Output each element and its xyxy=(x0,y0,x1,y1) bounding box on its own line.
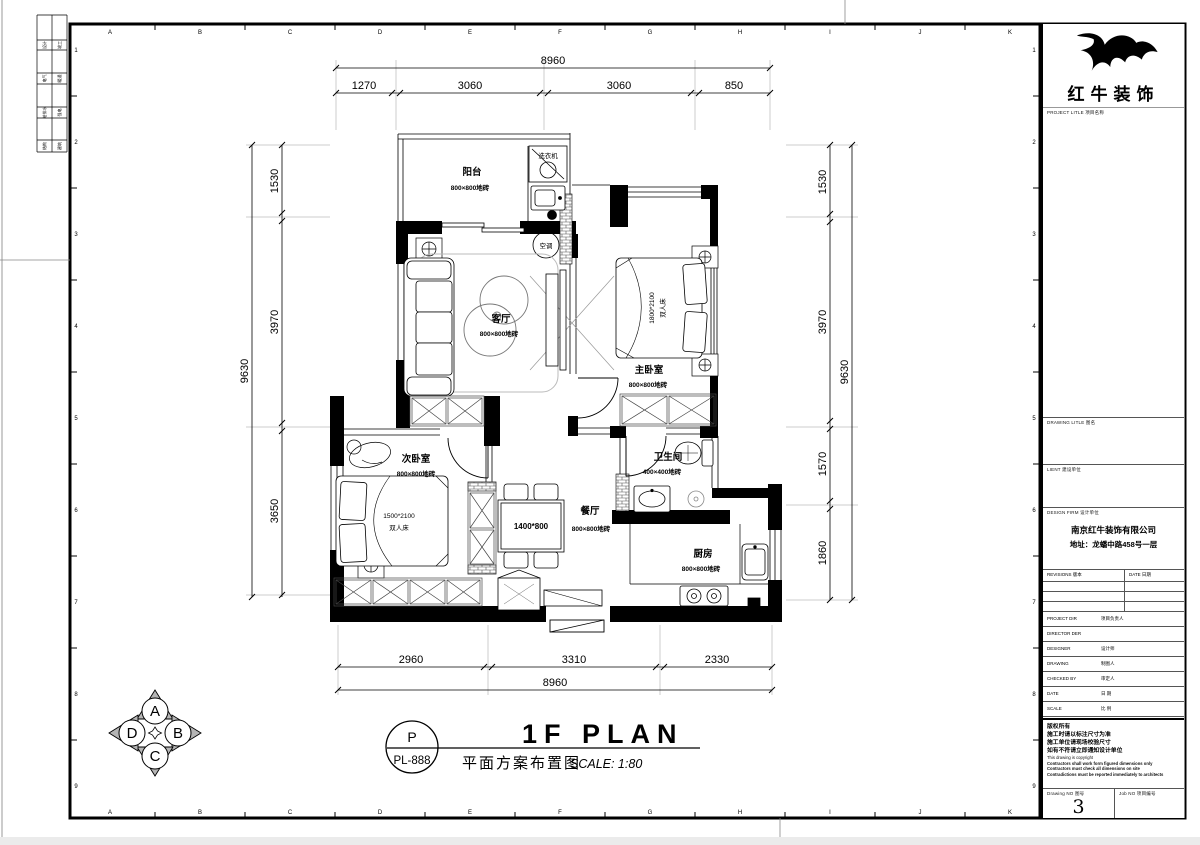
design-firm-label: DESIGN FIRM 设计单位 xyxy=(1043,508,1184,516)
revision-row xyxy=(1043,582,1184,592)
dim-left-2: 3970 xyxy=(269,310,281,334)
entry-door xyxy=(550,620,604,632)
revision-row xyxy=(1043,602,1184,612)
room-tile-balcony: 800×800地砖 xyxy=(451,183,490,192)
dim-bottom-3: 2330 xyxy=(705,654,729,666)
room-label-bath: 卫生间 xyxy=(654,451,683,463)
dim-bottom-total: 8960 xyxy=(543,677,567,689)
svg-text:K: K xyxy=(1008,810,1012,816)
svg-text:4: 4 xyxy=(74,324,78,330)
svg-text:4: 4 xyxy=(1032,324,1036,330)
room-label-bed2: 次卧室 xyxy=(402,453,431,465)
master-door xyxy=(578,378,618,418)
field-drawing: DRAWING制图人 xyxy=(1043,657,1184,672)
stamp-number: PL-888 xyxy=(393,755,430,767)
footer-title: P PL-888 1F PLAN 平面方案布置图 SCALE: 1:80 xyxy=(386,719,700,773)
ac-label: 空调 xyxy=(540,241,553,250)
compass-b: B xyxy=(173,725,183,742)
master-bed-size: 1800*2100 xyxy=(649,292,656,324)
svg-text:K: K xyxy=(1008,30,1012,36)
room-tile-master: 800×800地砖 xyxy=(629,380,668,389)
svg-text:9: 9 xyxy=(1032,784,1036,790)
dim-right-1: 1530 xyxy=(817,170,829,194)
dim-top-3: 3060 xyxy=(607,80,631,92)
room-tile-bath: 400×400地砖 xyxy=(643,467,682,476)
revisions-label: REVISIONS 版本 xyxy=(1043,570,1125,581)
room-label-dining: 餐厅 xyxy=(579,505,600,517)
svg-text:F: F xyxy=(558,30,562,36)
svg-text:暖通: 暖通 xyxy=(56,75,62,83)
floor-plan: 阳台 800×800地砖 洗衣机 空调 客厅 800×800地砖 主卧室 800… xyxy=(330,133,782,632)
svg-text:强电: 强电 xyxy=(56,109,62,117)
stamp-letter: P xyxy=(407,729,416,745)
center-cabinet xyxy=(468,482,496,574)
dim-left-total: 9630 xyxy=(239,359,251,383)
bedroom2-door xyxy=(448,438,488,478)
compass-a: A xyxy=(150,703,160,720)
dim-left-1: 1530 xyxy=(269,169,281,193)
room-tile-living: 800×800地砖 xyxy=(480,329,519,338)
bedroom2-wardrobe xyxy=(334,578,482,606)
field-director: DIRECTOR DER xyxy=(1043,627,1184,642)
svg-text:2: 2 xyxy=(1032,140,1036,146)
svg-text:G: G xyxy=(648,30,653,36)
svg-text:H: H xyxy=(738,30,742,36)
svg-text:J: J xyxy=(919,810,922,816)
dim-bottom-1: 2960 xyxy=(399,654,423,666)
copyright-notes: 版权所有 施工时请以标注尺寸为准 施工单位请现场校验尺寸 如有不符请立即通知设计… xyxy=(1043,718,1184,788)
room-tile-kitchen: 800×800地砖 xyxy=(682,564,721,573)
dim-right-2: 3970 xyxy=(817,310,829,334)
dim-right-3: 1570 xyxy=(817,452,829,476)
compass-d: D xyxy=(127,725,138,742)
svg-text:1: 1 xyxy=(74,48,78,54)
signature-fields: PROJECT DIR项目负责人 DIRECTOR DER DESIGNER设计… xyxy=(1043,612,1184,717)
revision-row xyxy=(1043,592,1184,602)
room-label-balcony: 阳台 xyxy=(462,166,482,178)
revisions-date-label: DATE 日期 xyxy=(1125,570,1184,581)
svg-text:2: 2 xyxy=(74,140,78,146)
svg-text:G: G xyxy=(648,810,653,816)
project-title-label: PROJECT LITLE 项目名称 xyxy=(1043,108,1184,116)
room-label-living: 客厅 xyxy=(490,313,511,325)
dim-top-total: 8960 xyxy=(541,55,565,67)
svg-text:5: 5 xyxy=(1032,416,1036,422)
svg-text:7: 7 xyxy=(74,600,78,606)
svg-text:A: A xyxy=(108,810,112,816)
dim-left-3: 3650 xyxy=(269,499,281,523)
svg-text:5: 5 xyxy=(74,416,78,422)
svg-text:A: A xyxy=(108,30,112,36)
field-project-dir: PROJECT DIR项目负责人 xyxy=(1043,612,1184,627)
svg-text:B: B xyxy=(198,30,202,36)
balcony-sliding-door xyxy=(442,223,524,232)
firm-name: 南京红牛装饰有限公司 xyxy=(1043,524,1184,536)
edge-signoff-table xyxy=(37,15,67,152)
compass-center-icon xyxy=(149,727,162,739)
svg-text:建筑: 建筑 xyxy=(56,142,62,150)
bathroom-sink xyxy=(634,486,670,512)
kitchen-sink xyxy=(742,544,768,580)
room-label-kitchen: 厨房 xyxy=(693,548,712,560)
second-bed-size: 1500*2100 xyxy=(383,513,415,520)
room-tile-bed2: 800×800地砖 xyxy=(397,469,436,478)
shower-drain xyxy=(688,491,704,507)
company-name: 红牛装饰 xyxy=(1043,80,1184,105)
client-label: LIENT 建设单位 xyxy=(1043,465,1184,473)
dining-table-size: 1400*800 xyxy=(514,522,549,531)
firm-address: 地址：龙蟠中路458号一层 xyxy=(1043,539,1184,550)
svg-text:竣工: 竣工 xyxy=(56,41,62,49)
svg-text:C: C xyxy=(288,810,293,816)
compass-c: C xyxy=(150,748,161,765)
sofa xyxy=(404,258,454,396)
second-bed xyxy=(336,476,448,566)
compass: A B C D xyxy=(109,690,201,776)
room-label-master: 主卧室 xyxy=(635,364,664,376)
svg-text:6: 6 xyxy=(74,508,78,514)
drawing-no-value: 3 xyxy=(1043,796,1114,818)
note-line: 施工单位请现场校验尺寸 xyxy=(1047,739,1184,747)
master-bed-name: 双人床 xyxy=(658,298,667,318)
svg-text:3: 3 xyxy=(74,232,78,238)
note-line: 如有不符请立即通知设计单位 xyxy=(1047,747,1184,755)
svg-text:D: D xyxy=(378,810,383,816)
note-line: Contradictions must be reported immediat… xyxy=(1047,772,1184,778)
room-tile-dining: 800×800地砖 xyxy=(572,524,611,533)
plan-scale: SCALE: 1:80 xyxy=(570,757,642,771)
washing-machine xyxy=(529,146,567,182)
svg-text:电气: 电气 xyxy=(41,75,47,83)
company-logo: 红牛装饰 xyxy=(1043,24,1184,108)
note-line: 施工时请以标注尺寸为准 xyxy=(1047,731,1184,739)
svg-text:I: I xyxy=(829,30,831,36)
drawing-number-row: Drawing NO 图号 3 Job NO 项目编号 xyxy=(1043,788,1184,818)
svg-text:J: J xyxy=(919,30,922,36)
svg-text:7: 7 xyxy=(1032,600,1036,606)
svg-text:设计: 设计 xyxy=(41,41,47,49)
revisions-table: REVISIONS 版本 DATE 日期 xyxy=(1043,570,1184,612)
svg-text:8: 8 xyxy=(1032,692,1036,698)
washer-label: 洗衣机 xyxy=(538,151,558,160)
svg-text:9: 9 xyxy=(74,784,78,790)
svg-text:8: 8 xyxy=(74,692,78,698)
svg-text:D: D xyxy=(378,30,383,36)
svg-text:E: E xyxy=(468,30,472,36)
svg-text:6: 6 xyxy=(1032,508,1036,514)
bull-logo-icon xyxy=(1066,28,1162,80)
svg-text:E: E xyxy=(468,810,472,816)
svg-text:F: F xyxy=(558,810,562,816)
dim-bottom-2: 3310 xyxy=(562,654,586,666)
drawing-sheet: 设计 竣工 电气 暖通 给排水 强电 结构 建筑 AB CD EF GH IJ … xyxy=(0,0,1200,845)
plan-title-en: 1F PLAN xyxy=(522,719,684,749)
dim-top-1: 1270 xyxy=(352,80,376,92)
field-designer: DESIGNER设计师 xyxy=(1043,642,1184,657)
title-block: 红牛装饰 PROJECT LITLE 项目名称 DRAWING LITLE 图名… xyxy=(1040,24,1185,818)
tv-unit xyxy=(530,270,614,370)
svg-text:结构: 结构 xyxy=(41,142,47,150)
grid-refs: AB CD EF GH IJ K AB CD EF GH IJ K 12 34 … xyxy=(70,24,1040,818)
drawing-title-label: DRAWING LITLE 图名 xyxy=(1043,418,1184,426)
dim-top-4: 850 xyxy=(725,80,743,92)
svg-text:3: 3 xyxy=(1032,232,1036,238)
job-no-label: Job NO 项目编号 xyxy=(1115,789,1184,797)
hall-closet xyxy=(410,396,484,426)
svg-text:C: C xyxy=(288,30,293,36)
dim-right-4: 1860 xyxy=(817,541,829,565)
svg-text:H: H xyxy=(738,810,742,816)
dim-right-total: 9630 xyxy=(839,360,851,384)
dim-top-2: 3060 xyxy=(458,80,482,92)
svg-text:1: 1 xyxy=(1032,48,1036,54)
column-symbol xyxy=(416,238,442,260)
second-bed-name: 双人床 xyxy=(389,523,409,532)
field-scale: SCALE比 例 xyxy=(1043,702,1184,717)
svg-text:给排水: 给排水 xyxy=(41,107,47,119)
entry-cabinet xyxy=(498,570,602,610)
field-checked-by: CHECKED BY审定人 xyxy=(1043,672,1184,687)
note-line: 版权所有 xyxy=(1047,723,1184,731)
svg-text:I: I xyxy=(829,810,831,816)
svg-text:B: B xyxy=(198,810,202,816)
person-figure xyxy=(347,438,394,471)
edge-signoff-labels: 设计 竣工 电气 暖通 给排水 强电 结构 建筑 xyxy=(41,41,62,150)
floorplan-canvas: 设计 竣工 电气 暖通 给排水 强电 结构 建筑 AB CD EF GH IJ … xyxy=(0,0,1200,845)
plan-title-cn: 平面方案布置图 xyxy=(462,754,581,772)
master-wardrobe xyxy=(620,394,716,426)
field-date: DATE日 期 xyxy=(1043,687,1184,702)
